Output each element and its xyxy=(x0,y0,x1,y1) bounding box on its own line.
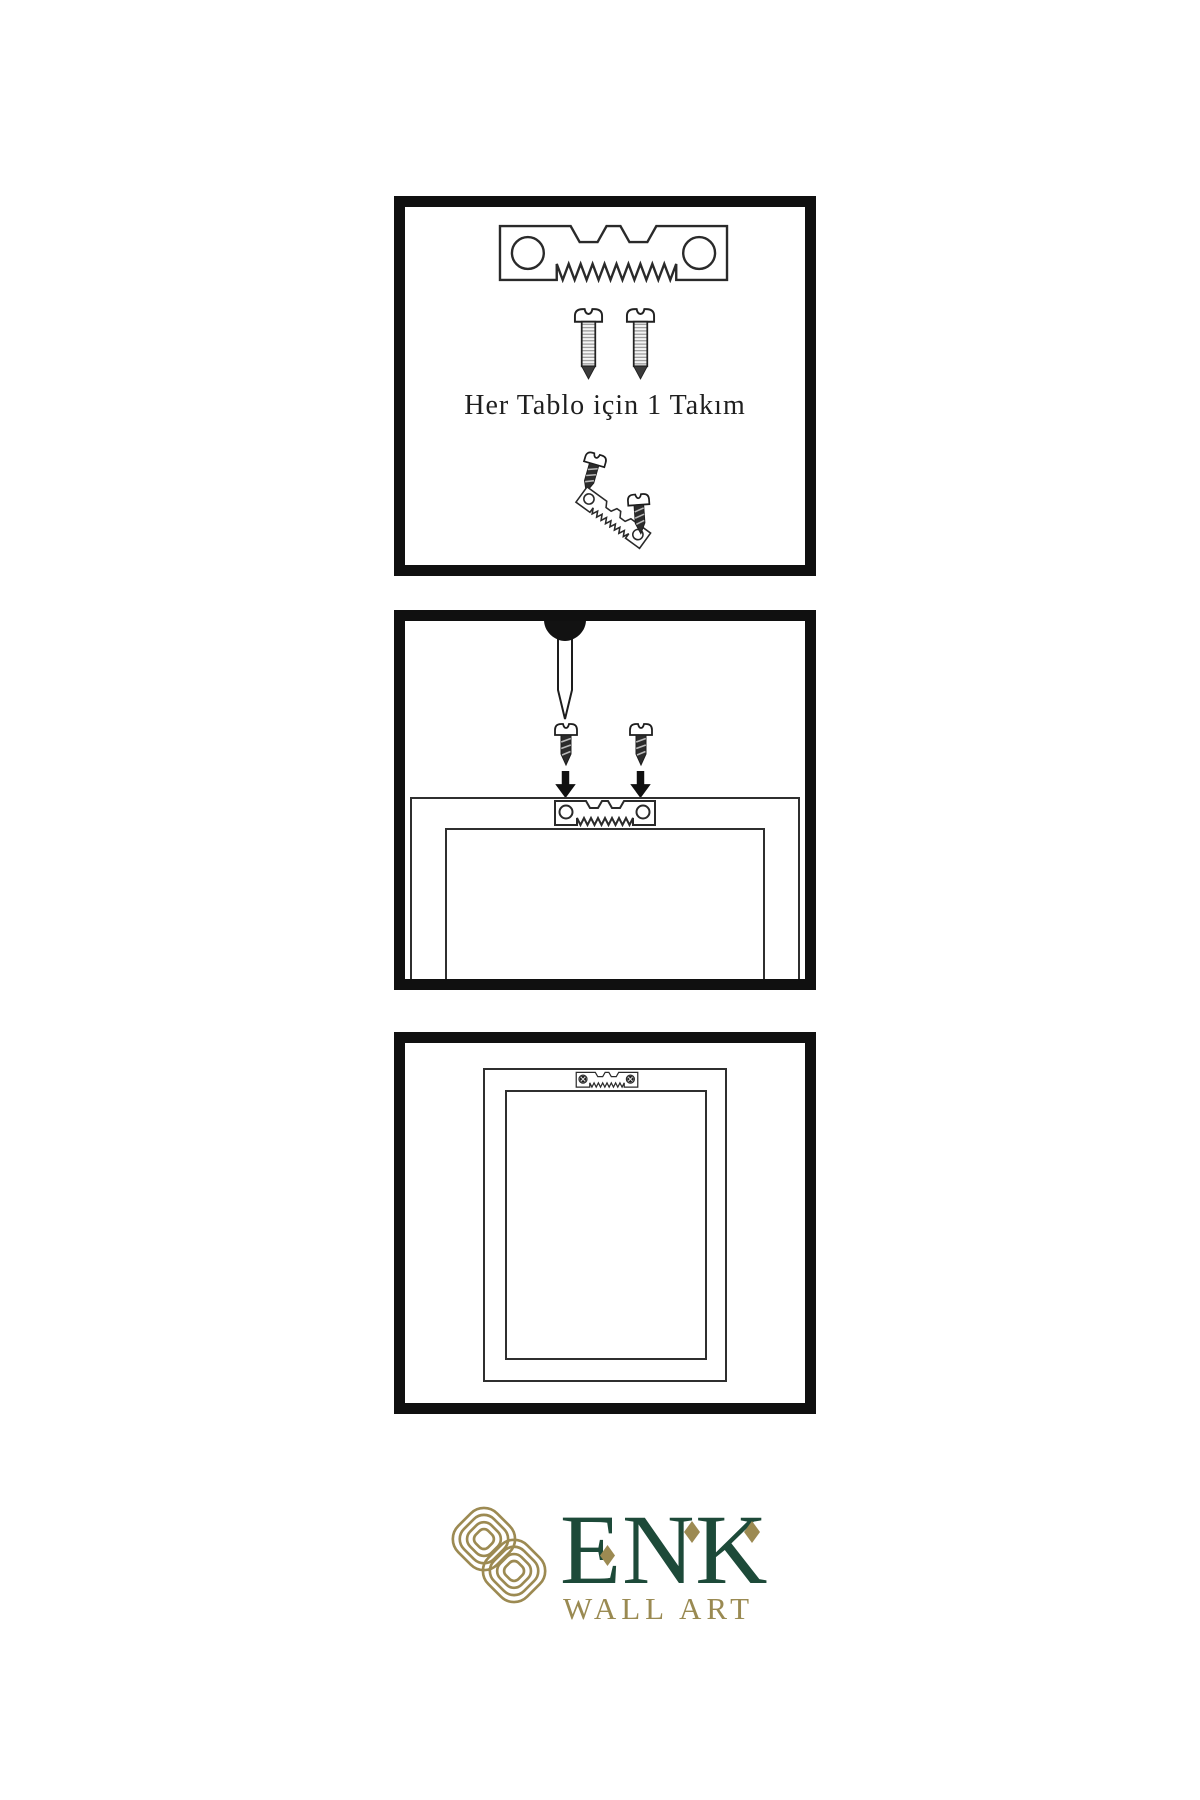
sawtooth-hanger-icon xyxy=(553,799,657,827)
sawtooth-hanger-with-screws-icon xyxy=(575,1071,639,1089)
arrow-down-icon xyxy=(555,771,576,799)
screw-icon xyxy=(553,722,579,768)
instruction-sheet: Her Tablo için 1 Takım xyxy=(0,0,1200,1800)
hanging-content xyxy=(405,1043,805,1403)
mounting-content xyxy=(405,621,805,979)
screw-icon xyxy=(628,722,654,768)
frame-back-inner xyxy=(445,828,765,979)
screw-icon xyxy=(625,305,656,383)
logo-title: ENK xyxy=(560,1500,769,1600)
arrow-down-icon xyxy=(630,771,651,799)
screw-icon xyxy=(625,491,653,538)
frame-back-inner xyxy=(505,1090,707,1360)
screw-icon xyxy=(573,305,604,383)
knot-logo-icon xyxy=(437,1487,561,1623)
hardware-kit-content: Her Tablo için 1 Takım xyxy=(405,207,805,565)
hanging-panel xyxy=(394,1032,816,1414)
sawtooth-hanger-icon xyxy=(497,223,730,283)
nail-icon xyxy=(541,621,589,722)
logo-subtitle: WALL ART xyxy=(563,1593,754,1624)
mounting-panel xyxy=(394,610,816,990)
kit-caption: Her Tablo için 1 Takım xyxy=(405,390,805,422)
hardware-kit-panel: Her Tablo için 1 Takım xyxy=(394,196,816,576)
